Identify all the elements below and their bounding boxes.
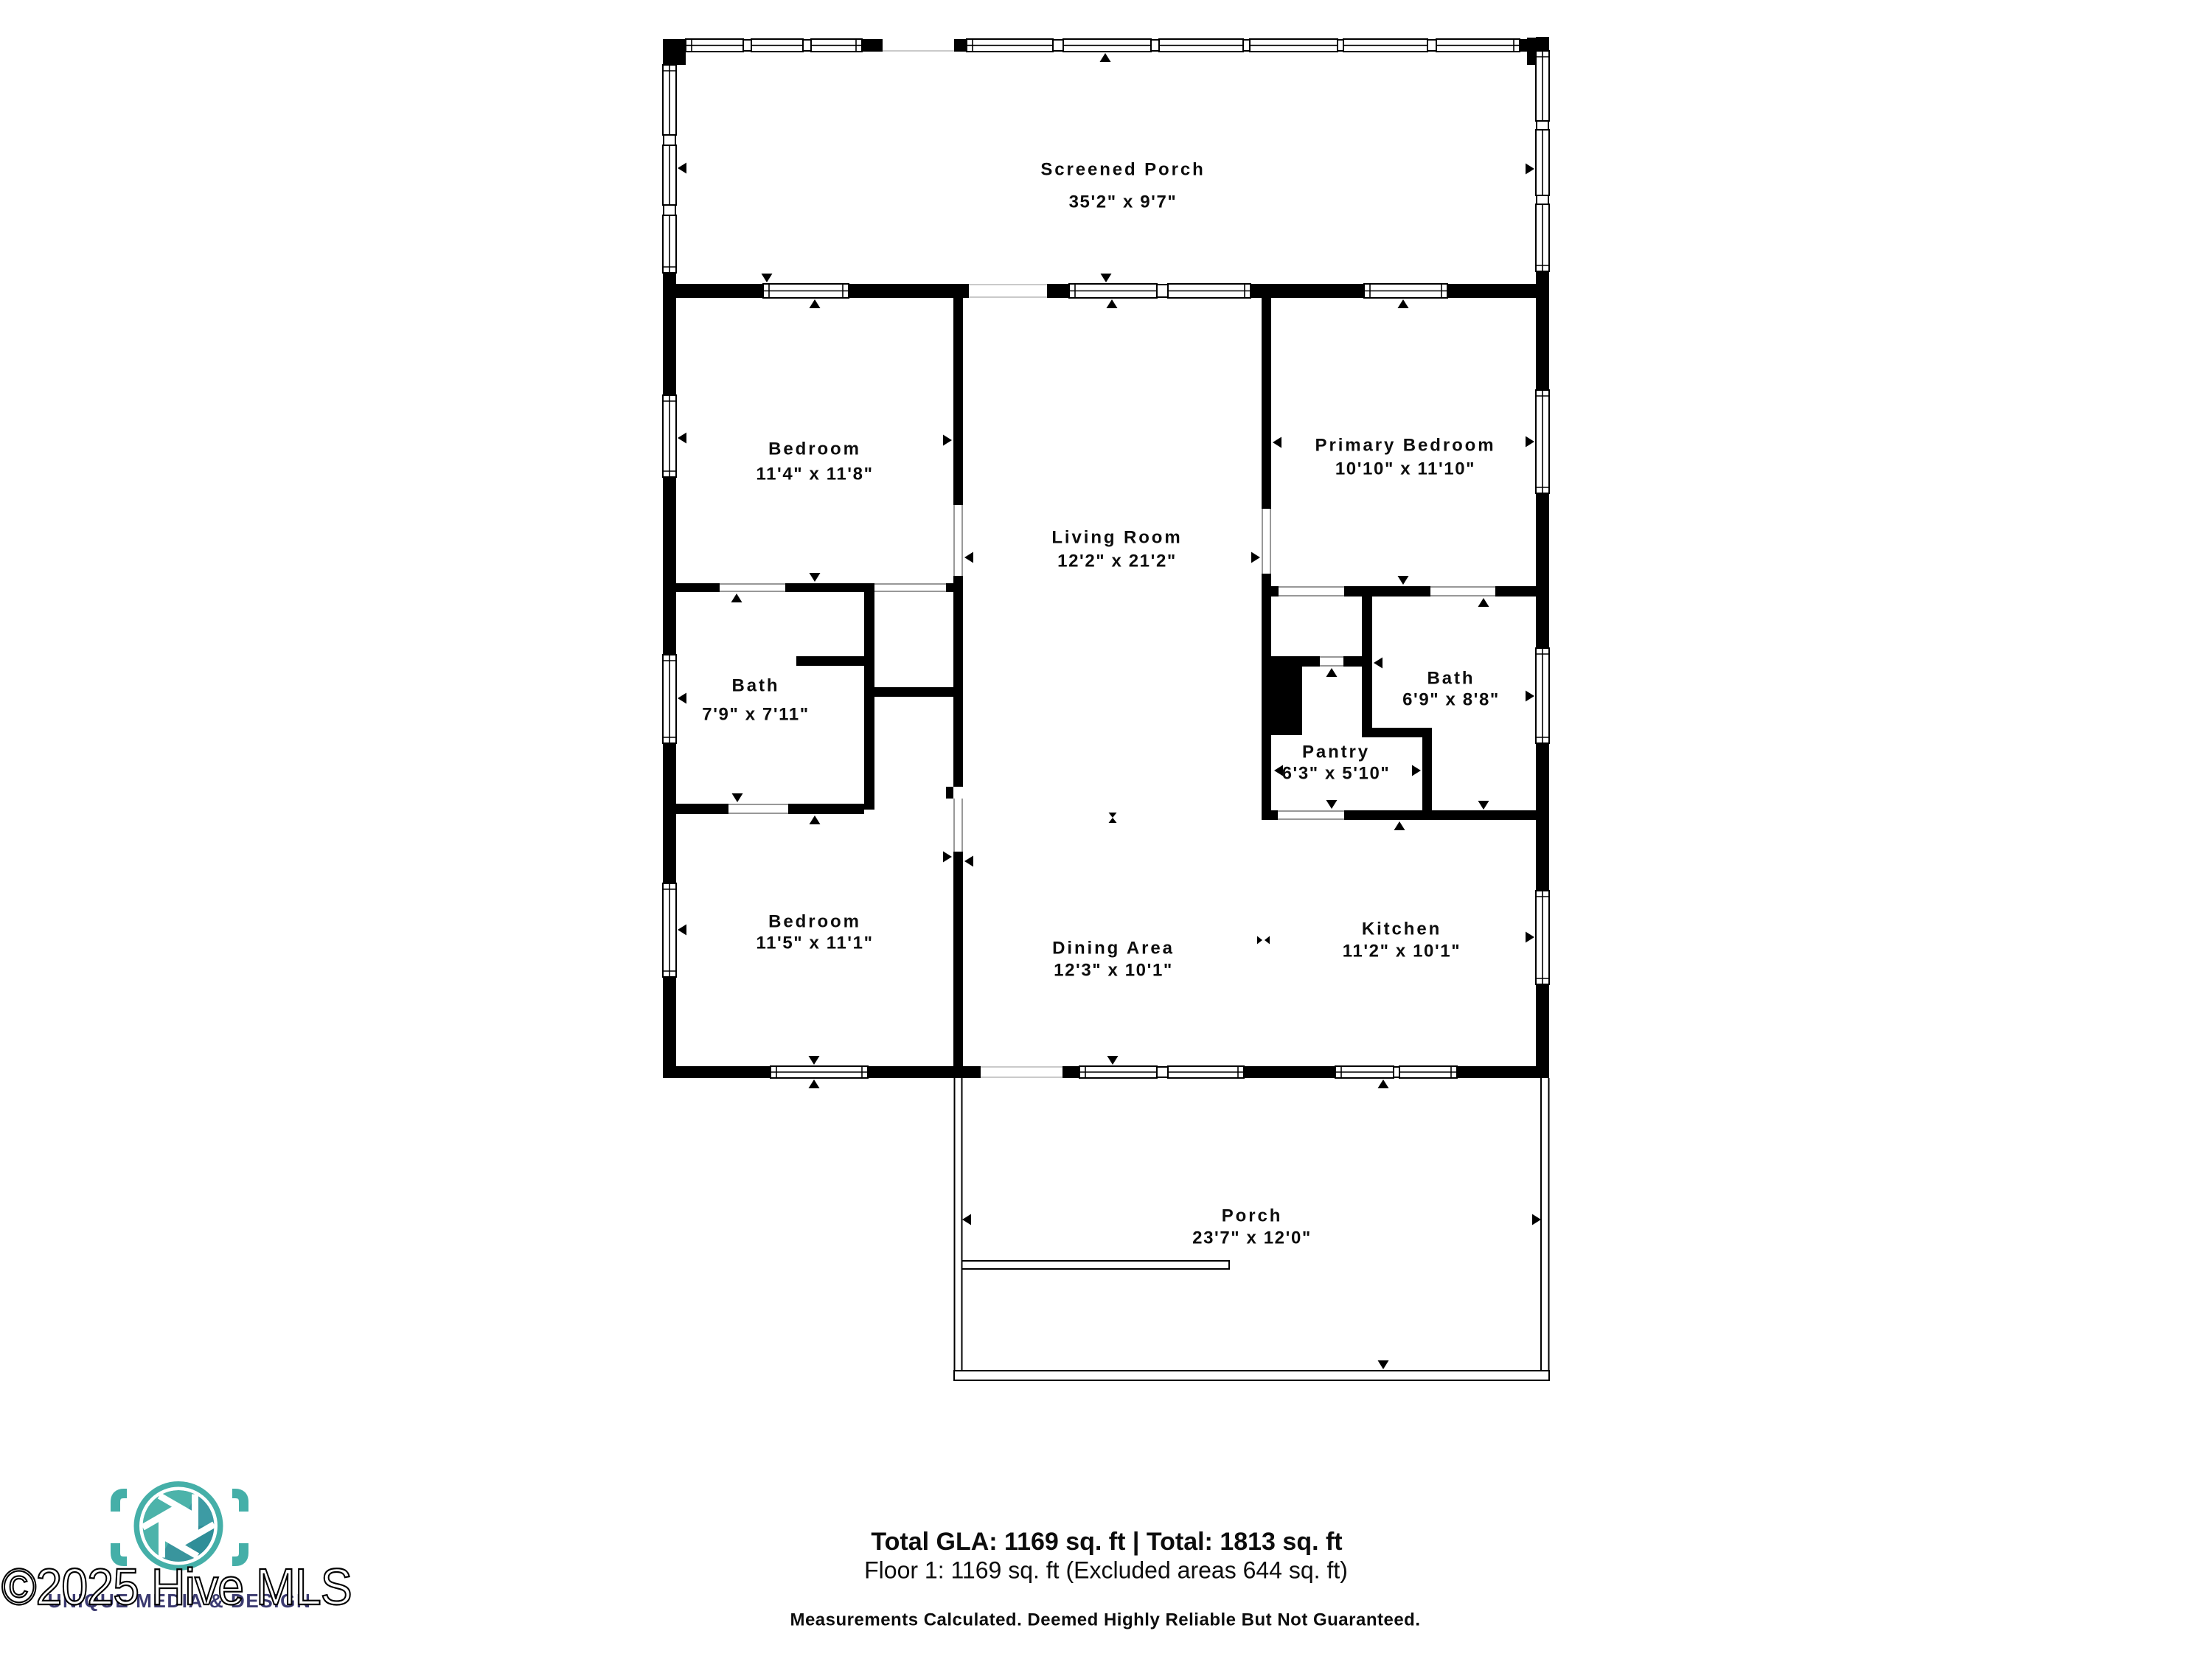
- svg-text:12'3" x 10'1": 12'3" x 10'1": [1054, 960, 1173, 980]
- svg-text:Porch: Porch: [1222, 1206, 1283, 1225]
- svg-text:11'4" x 11'8": 11'4" x 11'8": [756, 464, 873, 484]
- svg-text:23'7" x 12'0": 23'7" x 12'0": [1192, 1228, 1312, 1248]
- svg-text:Kitchen: Kitchen: [1362, 919, 1441, 939]
- svg-text:7'9" x 7'11": 7'9" x 7'11": [702, 704, 809, 724]
- svg-text:35'2" x 9'7": 35'2" x 9'7": [1069, 192, 1178, 212]
- svg-text:Bedroom: Bedroom: [768, 439, 861, 459]
- svg-text:11'2" x 10'1": 11'2" x 10'1": [1343, 941, 1461, 961]
- svg-text:6'3" x 5'10": 6'3" x 5'10": [1282, 763, 1391, 783]
- svg-text:Bath: Bath: [732, 675, 780, 695]
- svg-text:Screened Porch: Screened Porch: [1040, 159, 1205, 179]
- svg-text:Pantry: Pantry: [1302, 742, 1370, 762]
- svg-text:12'2" x 21'2": 12'2" x 21'2": [1057, 551, 1177, 571]
- svg-text:Measurements Calculated. Deeme: Measurements Calculated. Deemed Highly R…: [790, 1610, 1420, 1630]
- svg-text:Dining Area: Dining Area: [1052, 938, 1175, 958]
- svg-text:©2025 Hive MLS: ©2025 Hive MLS: [1, 1559, 352, 1616]
- svg-text:Bath: Bath: [1427, 668, 1475, 688]
- svg-text:6'9" x 8'8": 6'9" x 8'8": [1402, 689, 1500, 709]
- svg-text:Bedroom: Bedroom: [768, 911, 861, 931]
- svg-text:11'5" x 11'1": 11'5" x 11'1": [756, 933, 873, 953]
- svg-text:Total GLA: 1169 sq. ft | Total: Total GLA: 1169 sq. ft | Total: 1813 sq.…: [871, 1528, 1342, 1556]
- svg-text:10'10" x 11'10": 10'10" x 11'10": [1335, 459, 1475, 479]
- svg-text:Living Room: Living Room: [1051, 527, 1182, 547]
- svg-text:Floor 1: 1169 sq. ft (Excluded: Floor 1: 1169 sq. ft (Excluded areas 644…: [864, 1557, 1348, 1583]
- svg-text:Primary Bedroom: Primary Bedroom: [1315, 435, 1496, 455]
